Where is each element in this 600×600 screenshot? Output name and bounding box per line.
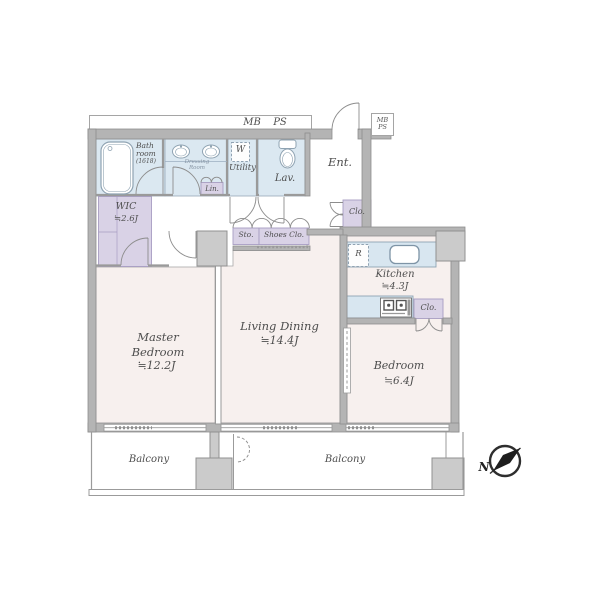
stove-icon <box>381 298 412 317</box>
utility-label: Utility <box>227 164 258 174</box>
wall-bedroom-top <box>347 318 415 324</box>
compass-north-label: N <box>476 461 492 475</box>
kitchen-closet-label: Clo. <box>414 303 443 312</box>
kitchen-sink-icon <box>390 246 419 264</box>
kitchen-area-label: ≒4.3J <box>352 282 438 293</box>
pipe-space-ps-label: PS <box>268 117 292 129</box>
wall-top-left <box>88 129 332 139</box>
shoes-closet-label: Shoes Clo. <box>259 231 309 240</box>
linen-label-text: Lin. <box>201 185 223 193</box>
pillar-kitchen <box>436 231 465 261</box>
escape-hatch-arc <box>237 437 249 462</box>
wall-hall-living <box>233 246 310 251</box>
corner-ps-label: PS <box>372 124 393 131</box>
lavatory-label: Lav. <box>268 173 302 185</box>
bathroom-size-label: (1618) <box>136 159 166 166</box>
windows <box>104 424 449 431</box>
storage-label: Sto. <box>233 231 259 240</box>
bathtub-icon <box>101 142 133 194</box>
pillar-balcony-left <box>196 458 232 494</box>
entrance-closet-label: Clo. <box>343 207 371 216</box>
living-dining-label: Living Dining <box>219 320 340 333</box>
bedroom-label: Bedroom <box>347 360 451 373</box>
wall-entrance-bottom <box>307 229 343 235</box>
balcony-right-label: Balcony <box>315 454 375 466</box>
pipe-space-mb-label: MB <box>240 117 264 129</box>
washer-label: W <box>232 145 250 155</box>
wall-bedroom-top-2 <box>443 318 452 324</box>
master-bedroom-label: Master Bedroom <box>123 330 193 359</box>
sink-icon <box>203 145 220 158</box>
master-door-arc <box>169 231 196 258</box>
lavatory-door-arc <box>258 197 284 223</box>
wall-left <box>88 129 96 432</box>
floor-plan-graphics <box>0 0 600 600</box>
bathroom-label: Bath room <box>136 142 164 158</box>
compass-icon <box>490 446 521 476</box>
entrance-closet-door-top <box>330 203 343 216</box>
toilet-icon <box>279 140 296 168</box>
wall-lav-entrance <box>305 133 310 196</box>
kitchen-label: Kitchen <box>352 269 438 281</box>
pillar-center <box>197 231 227 266</box>
entrance-closet-door-bottom <box>330 214 343 227</box>
utility-door-arc <box>230 197 256 223</box>
dressing-room-label: Dressing Room <box>176 159 218 172</box>
master-bedroom-area-label: ≒12.2J <box>97 360 216 373</box>
wic-label: WIC <box>100 202 152 213</box>
bedroom-area-label: ≒6.4J <box>347 375 451 387</box>
sink-icon <box>173 145 190 158</box>
wall-right-upper <box>362 129 371 232</box>
pillar-stem-left <box>210 432 219 459</box>
living-dining-area-label: ≒14.4J <box>219 335 340 348</box>
entrance-label: Ent. <box>318 156 362 169</box>
wic-area-label: ≒2.6J <box>100 215 152 225</box>
balcony-left-label: Balcony <box>119 454 179 466</box>
pillar-balcony-right <box>432 458 464 492</box>
balcony-railing <box>89 490 464 496</box>
wall-right-lower <box>451 236 459 432</box>
floor-plan: MB PS MB PS Bath room (1618) Dressing Ro… <box>0 0 600 600</box>
refrigerator-label: R <box>349 250 369 260</box>
corner-pipe-space-box: MB PS <box>371 113 394 136</box>
entrance-door-arc <box>332 103 359 130</box>
